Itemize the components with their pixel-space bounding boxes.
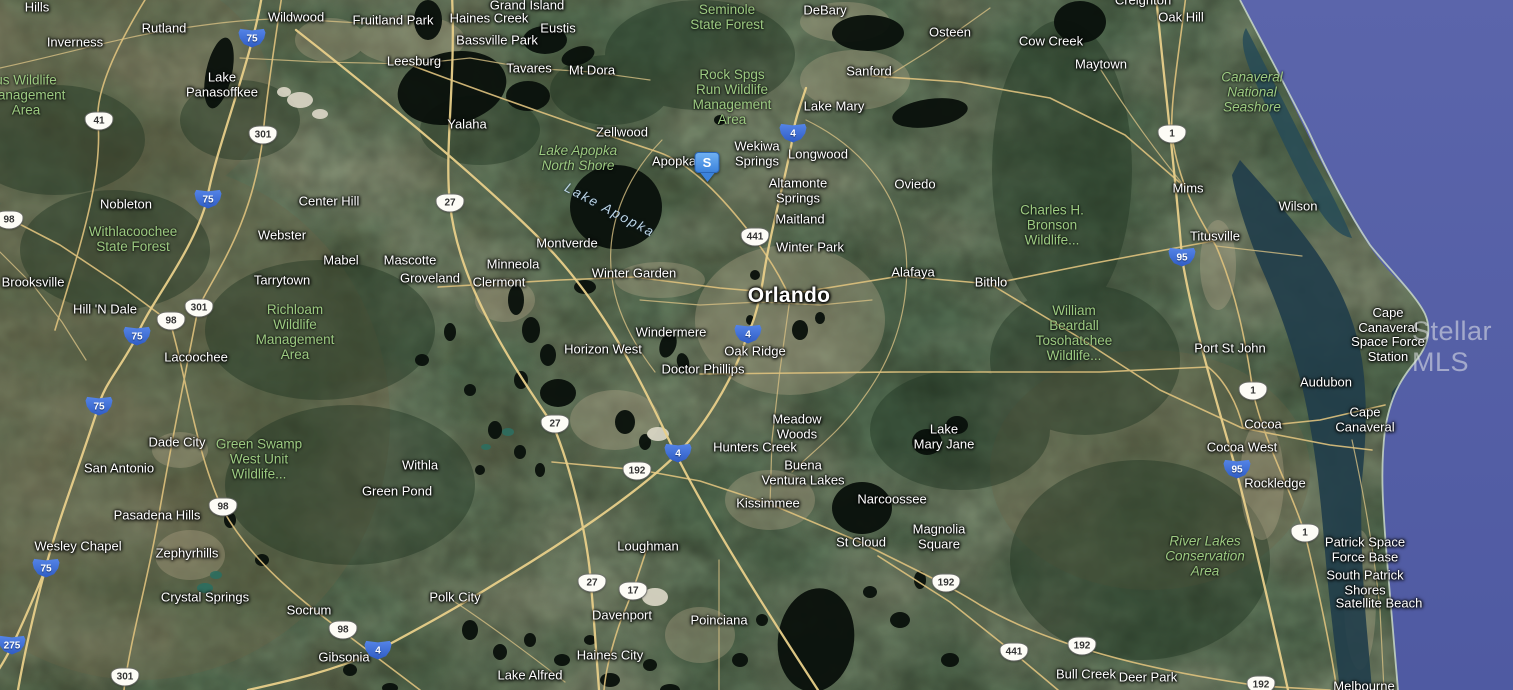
marker-layer: S [0,0,1513,690]
map-canvas[interactable]: HillsRutlandInvernessWildwoodFruitland P… [0,0,1513,690]
property-marker-pin[interactable]: S [695,152,720,182]
property-marker-label: S [695,152,720,173]
property-marker-tip [700,173,714,182]
